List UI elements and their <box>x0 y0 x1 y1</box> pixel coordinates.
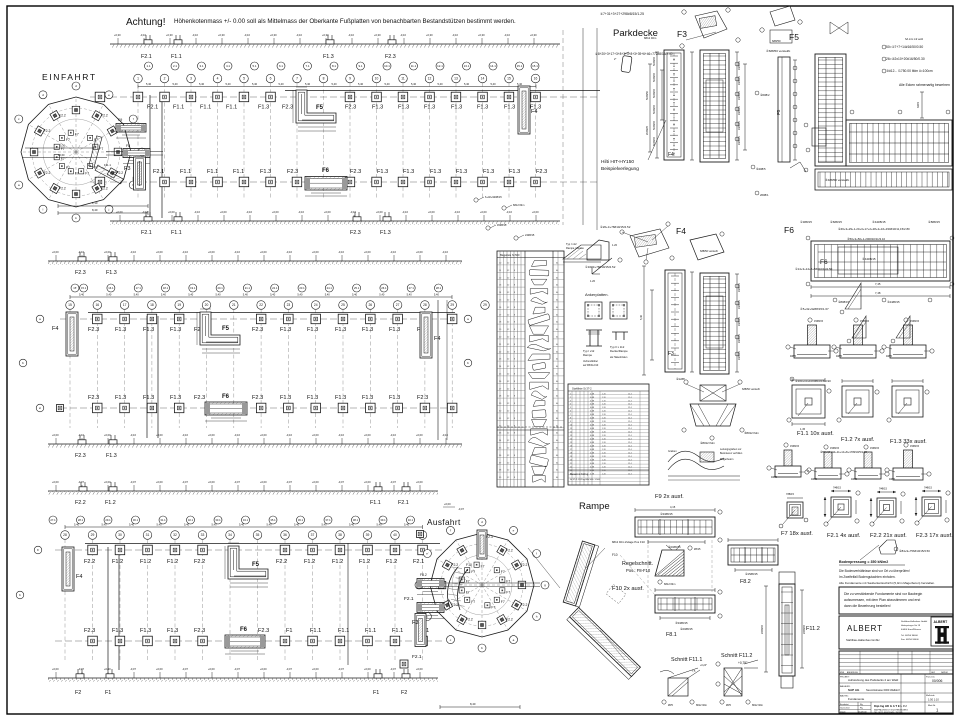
svg-text:+0,00: +0,00 <box>532 210 539 214</box>
svg-text:20#8/25: 20#8/25 <box>646 125 649 135</box>
svg-text:15#8/15: 15#8/15 <box>910 445 920 448</box>
svg-text:③33#8/15: ③33#8/15 <box>675 621 688 625</box>
svg-text:Biegeliste St 500: Biegeliste St 500 <box>500 253 520 257</box>
svg-text:2: 2 <box>570 397 571 399</box>
svg-text:F6: F6 <box>322 168 330 174</box>
svg-text:F11.1: F11.1 <box>104 163 111 167</box>
svg-text:Maßstab: Maßstab <box>926 694 935 697</box>
svg-text:5,40: 5,40 <box>74 523 80 527</box>
svg-text:F2.3: F2.3 <box>345 105 356 111</box>
svg-text:+0,00: +0,00 <box>104 667 111 671</box>
svg-text:①16+3+78#10/15/4.52: ①16+3+78#10/15/4.52 <box>585 265 616 269</box>
svg-text:5,40: 5,40 <box>199 82 205 86</box>
svg-text:Gezeichnet: Gezeichnet <box>840 707 850 710</box>
svg-text:6+32+92#8/15: 6+32+92#8/15 <box>485 195 502 199</box>
svg-text:35: 35 <box>256 533 260 537</box>
svg-text:7#8/15: 7#8/15 <box>924 486 932 490</box>
svg-text:F2.2: F2.2 <box>194 559 205 565</box>
svg-text:7,48: 7,48 <box>875 291 881 295</box>
svg-text:1.20: 1.20 <box>602 449 606 451</box>
svg-text:12.4: 12.4 <box>628 425 632 427</box>
svg-text:5,40: 5,40 <box>517 82 523 86</box>
svg-text:F1.2 7x ausf.: F1.2 7x ausf. <box>841 437 875 443</box>
svg-text:+0,00: +0,00 <box>364 480 371 484</box>
svg-text:6: 6 <box>270 77 272 81</box>
svg-text:F5: F5 <box>222 326 230 332</box>
svg-text:①14+3+14+5+56#10/11/2.50: ①14+3+14+5+56#10/11/2.50 <box>795 267 833 271</box>
svg-text:+0,00: +0,00 <box>364 250 371 254</box>
svg-text:F2.3: F2.3 <box>75 270 86 276</box>
svg-text:1:50 1:10: 1:50 1:10 <box>928 698 939 702</box>
svg-text:-0,16: -0,16 <box>506 210 512 214</box>
svg-text:St 37-2: 812 kg BSt 500: 1.50: St 37-2: 812 kg BSt 500: 1.500 <box>570 478 601 481</box>
svg-text:35.1: 35.1 <box>270 518 276 522</box>
svg-text:Gesamt 2.312 kg: Gesamt 2.312 kg <box>570 473 589 476</box>
svg-text:1.20: 1.20 <box>602 439 606 441</box>
svg-text:F1.2: F1.2 <box>359 559 370 565</box>
svg-text:16.1: 16.1 <box>108 286 114 290</box>
svg-text:-0,07: -0,07 <box>338 667 344 671</box>
svg-text:1.20: 1.20 <box>602 411 606 413</box>
svg-text:7#8/15: 7#8/15 <box>786 492 794 496</box>
svg-text:+0,00: +0,00 <box>260 250 267 254</box>
svg-text:14: 14 <box>570 439 572 441</box>
svg-text:F1.1: F1.1 <box>200 105 211 111</box>
svg-text:5: 5 <box>570 407 571 409</box>
svg-text:-0,16: -0,16 <box>194 210 200 214</box>
svg-text:6.1: 6.1 <box>279 64 283 68</box>
svg-text:50#8/15: 50#8/15 <box>653 56 656 66</box>
svg-text:③44#8/15: ③44#8/15 <box>887 300 900 304</box>
svg-text:26=②2x10+20#16/50/0.30: 26=②2x10+20#16/50/0.30 <box>886 57 925 61</box>
svg-text:4#8/5: 4#8/5 <box>771 476 778 479</box>
svg-text:F2.3: F2.3 <box>417 395 428 401</box>
svg-text:F1.3: F1.3 <box>115 327 126 333</box>
svg-text:15#8/15: 15#8/15 <box>910 320 920 323</box>
svg-text:50=①7+7+14#16/50/0.50: 50=①7+7+14#16/50/0.50 <box>886 45 923 49</box>
svg-text:F3: F3 <box>677 29 687 39</box>
svg-text:5,40: 5,40 <box>184 523 190 527</box>
svg-text:F7: F7 <box>85 171 89 175</box>
svg-text:-0,07: -0,07 <box>78 667 84 671</box>
svg-text:F1: F1 <box>105 690 111 696</box>
svg-text:F2.3: F2.3 <box>282 105 293 111</box>
svg-text:12.4: 12.4 <box>628 456 632 458</box>
svg-text:1.20: 1.20 <box>602 442 606 444</box>
svg-text:②8#12 lfdm: ②8#12 lfdm <box>700 441 715 445</box>
svg-text:9: 9 <box>349 77 351 81</box>
svg-text:auf FB/FL2/10: auf FB/FL2/10 <box>583 364 599 367</box>
svg-text:5,40: 5,40 <box>325 293 331 297</box>
svg-text:+0,00: +0,00 <box>416 433 423 437</box>
svg-text:+0,79°: +0,79° <box>738 661 748 665</box>
svg-text:F10: F10 <box>612 553 618 557</box>
svg-text:F5: F5 <box>789 32 799 42</box>
svg-text:10: 10 <box>375 77 379 81</box>
svg-text:18.1: 18.1 <box>163 286 169 290</box>
svg-text:5,40: 5,40 <box>216 293 222 297</box>
svg-text:+0,00: +0,00 <box>104 433 111 437</box>
svg-text:20.1: 20.1 <box>217 286 223 290</box>
svg-text:23: 23 <box>570 470 572 472</box>
svg-text:20: 20 <box>205 303 209 307</box>
svg-text:5,40: 5,40 <box>212 523 218 527</box>
svg-text:25: 25 <box>341 303 345 307</box>
svg-text:5,40: 5,40 <box>297 293 303 297</box>
svg-text:+0,00: +0,00 <box>364 433 371 437</box>
svg-text:Pos.: F8-F10: Pos.: F8-F10 <box>626 568 651 573</box>
svg-text:2.1: 2.1 <box>173 64 177 68</box>
svg-text:37: 37 <box>311 533 315 537</box>
svg-text:F7: F7 <box>471 600 475 604</box>
svg-text:+0,00: +0,00 <box>52 480 59 484</box>
svg-text:50#8/15: 50#8/15 <box>653 104 656 114</box>
svg-text:Fundamente: Fundamente <box>848 697 865 701</box>
svg-text:-0,16: -0,16 <box>298 210 304 214</box>
svg-text:4#8/5: 4#8/5 <box>836 355 843 358</box>
svg-text:als Hakenböden: als Hakenböden <box>610 356 628 359</box>
svg-text:F2.3: F2.3 <box>258 628 269 634</box>
svg-text:F2.2: F2.2 <box>113 170 119 174</box>
svg-text:①7+31+3+27+298#8/15/1.25: ①7+31+3+27+298#8/15/1.25 <box>600 12 644 16</box>
svg-text:-0,16: -0,16 <box>182 433 188 437</box>
svg-text:5,40: 5,40 <box>134 293 140 297</box>
svg-text:-0,16: -0,16 <box>78 433 84 437</box>
svg-text:32.1: 32.1 <box>188 518 194 522</box>
svg-text:Schnitt F11.1: Schnitt F11.1 <box>671 657 702 663</box>
svg-text:1.20: 1.20 <box>590 279 596 283</box>
svg-text:③#12... /1750.00 lfdm ü=100cm: ③#12... /1750.00 lfdm ü=100cm <box>886 69 933 73</box>
svg-text:8.1: 8.1 <box>332 64 336 68</box>
svg-text:1.20: 1.20 <box>602 453 606 455</box>
svg-text:38: 38 <box>338 533 342 537</box>
svg-text:20#8/15: 20#8/15 <box>738 283 741 292</box>
svg-text:+0,30: +0,30 <box>270 33 277 37</box>
svg-text:5,40: 5,40 <box>377 523 383 527</box>
svg-text:F11.2: F11.2 <box>806 626 820 632</box>
svg-text:5,40: 5,40 <box>352 293 358 297</box>
svg-text:-0,16: -0,16 <box>390 433 396 437</box>
svg-text:+0,00: +0,00 <box>104 480 111 484</box>
svg-text:+0,00: +0,00 <box>156 250 163 254</box>
svg-text:+0,00: +0,00 <box>312 250 319 254</box>
svg-text:+0,00: +0,00 <box>480 210 487 214</box>
svg-text:⑤8#12 lfdm: ⑤8#12 lfdm <box>744 431 759 435</box>
svg-text:②15#8/15: ②15#8/15 <box>745 572 758 576</box>
svg-text:44400 Ernst/Rhause: 44400 Ernst/Rhause <box>901 628 922 631</box>
svg-text:16: 16 <box>570 446 572 448</box>
svg-text:F2.3: F2.3 <box>88 327 99 333</box>
svg-text:15#8/15: 15#8/15 <box>814 320 824 323</box>
svg-text:5,40: 5,40 <box>438 82 444 86</box>
svg-text:12.4: 12.4 <box>628 404 632 406</box>
svg-text:+0,00: +0,00 <box>260 433 267 437</box>
svg-text:F1.1: F1.1 <box>180 169 191 175</box>
svg-text:F1.3: F1.3 <box>430 169 441 175</box>
svg-text:F2.1: F2.1 <box>141 54 152 60</box>
svg-text:②100+10+1000#10/15/3.90: ②100+10+1000#10/15/3.90 <box>795 379 831 383</box>
svg-text:24: 24 <box>314 303 318 307</box>
svg-text:F2.2: F2.2 <box>451 563 458 567</box>
svg-text:④5+32+92#8/15/1.67: ④5+32+92#8/15/1.67 <box>800 307 829 311</box>
svg-text:②12#8: ②12#8 <box>676 377 685 381</box>
svg-text:-0,10: -0,10 <box>400 33 406 37</box>
svg-text:F1.3: F1.3 <box>380 230 391 236</box>
svg-text:F1.3: F1.3 <box>307 395 318 401</box>
svg-text:+0,00: +0,00 <box>312 667 319 671</box>
svg-text:F2.2: F2.2 <box>466 618 473 622</box>
svg-text:-0,16: -0,16 <box>130 433 136 437</box>
svg-text:12.4: 12.4 <box>628 411 632 413</box>
svg-text:22: 22 <box>259 303 263 307</box>
svg-text:F2.1: F2.1 <box>404 596 414 602</box>
svg-text:-0,07: -0,07 <box>130 667 136 671</box>
svg-text:11: 11 <box>570 428 572 430</box>
svg-text:27.1: 27.1 <box>409 286 415 290</box>
svg-text:Schnitt F11.2: Schnitt F11.2 <box>721 653 752 659</box>
svg-text:39: 39 <box>366 533 370 537</box>
svg-text:F1.3: F1.3 <box>307 327 318 333</box>
svg-text:F1.2: F1.2 <box>140 559 151 565</box>
svg-text:+0,00: +0,00 <box>312 480 319 484</box>
svg-text:5,40: 5,40 <box>491 82 497 86</box>
svg-text:2°: 2° <box>614 58 616 61</box>
svg-text:F1.2: F1.2 <box>386 559 397 565</box>
svg-text:15#8/15: 15#8/15 <box>790 445 800 448</box>
svg-text:22.1: 22.1 <box>272 286 278 290</box>
svg-text:+0,00: +0,00 <box>364 667 371 671</box>
svg-text:8,40: 8,40 <box>92 208 98 212</box>
svg-text:20#8/15: 20#8/15 <box>738 351 741 360</box>
svg-text:+0,00: +0,00 <box>428 210 435 214</box>
svg-text:-0,07: -0,07 <box>458 507 464 511</box>
svg-text:F7: F7 <box>75 133 79 137</box>
svg-text:F9: F9 <box>118 118 122 122</box>
svg-text:dann die Bewehrung bestellen!: dann die Bewehrung bestellen! <box>844 604 891 608</box>
svg-text:+0,30: +0,30 <box>374 33 381 37</box>
svg-text:5,40: 5,40 <box>102 523 108 527</box>
svg-text:F7: F7 <box>61 157 65 161</box>
svg-text:+0,00: +0,00 <box>208 480 215 484</box>
svg-text:13: 13 <box>570 435 572 437</box>
svg-text:F2.2: F2.2 <box>84 559 95 565</box>
svg-text:12.4: 12.4 <box>628 397 632 399</box>
svg-text:F2.3: F2.3 <box>350 169 361 175</box>
svg-text:5,40: 5,40 <box>385 82 391 86</box>
svg-text:Hilti HIT-HY150: Hilti HIT-HY150 <box>601 159 634 165</box>
svg-text:-0,16: -0,16 <box>142 210 148 214</box>
svg-text:F2.3: F2.3 <box>194 628 205 634</box>
svg-text:5,40: 5,40 <box>188 293 194 297</box>
svg-text:F1.3: F1.3 <box>106 453 117 459</box>
svg-text:+0,00: +0,00 <box>220 210 227 214</box>
svg-text:F1.3: F1.3 <box>389 395 400 401</box>
svg-text:8#12 lfdm: 8#12 lfdm <box>664 582 675 586</box>
svg-text:F1.1: F1.1 <box>310 628 321 634</box>
svg-text:-0,07: -0,07 <box>182 667 188 671</box>
svg-text:1.20: 1.20 <box>602 456 606 458</box>
svg-text:5,40: 5,40 <box>332 82 338 86</box>
svg-text:12.4: 12.4 <box>628 393 632 395</box>
svg-text:5,30: 5,30 <box>60 144 66 148</box>
svg-text:F2.3: F2.3 <box>88 395 99 401</box>
svg-text:Bodenpressung = 350 kN/m2: Bodenpressung = 350 kN/m2 <box>839 560 888 564</box>
svg-text:12.4: 12.4 <box>628 400 632 402</box>
svg-text:15#8/15: 15#8/15 <box>860 320 870 323</box>
svg-text:+0,00: +0,00 <box>208 250 215 254</box>
svg-text:aufzumessen, mit dem Plan abzu: aufzumessen, mit dem Plan abzustimmen un… <box>844 598 920 602</box>
svg-text:F1.3: F1.3 <box>258 105 269 111</box>
svg-text:12.4: 12.4 <box>628 453 632 455</box>
svg-text:SA mm mit verkl: SA mm mit verkl <box>905 38 924 41</box>
svg-text:12.4: 12.4 <box>628 407 632 409</box>
svg-text:F2.2: F2.2 <box>521 603 528 607</box>
svg-text:5,40: 5,40 <box>270 293 276 297</box>
svg-text:15#8/15: 15#8/15 <box>870 447 880 450</box>
svg-text:12: 12 <box>428 77 432 81</box>
svg-text:15: 15 <box>68 303 72 307</box>
svg-text:F2.2: F2.2 <box>506 618 513 622</box>
svg-text:Alle Ecken rahmenartig bewehre: Alle Ecken rahmenartig bewehren <box>899 83 950 87</box>
svg-text:F2: F2 <box>75 690 81 696</box>
svg-text:+0,00: +0,00 <box>324 210 331 214</box>
svg-text:SAP AG: SAP AG <box>848 688 860 692</box>
svg-text:F1.3: F1.3 <box>335 327 346 333</box>
svg-text:6: 6 <box>570 411 571 413</box>
svg-text:F7: F7 <box>501 570 505 574</box>
svg-text:24.1: 24.1 <box>327 286 333 290</box>
svg-text:F1.3: F1.3 <box>140 628 151 634</box>
svg-text:12.1: 12.1 <box>437 64 443 68</box>
svg-text:③50+3+50+1-200#10/11/3.10: ③50+3+50+1-200#10/11/3.10 <box>847 237 886 241</box>
svg-text:Stahlbau-Hallenbau GmbH: Stahlbau-Hallenbau GmbH <box>846 638 879 642</box>
svg-text:Decke/Rampe: Decke/Rampe <box>610 349 628 353</box>
svg-text:F1.2: F1.2 <box>112 559 123 565</box>
svg-text:+0,00: +0,00 <box>260 667 267 671</box>
svg-text:19: 19 <box>570 456 572 458</box>
svg-text:F2.3: F2.3 <box>350 230 361 236</box>
svg-text:F2.3: F2.3 <box>287 169 298 175</box>
svg-text:F7: F7 <box>66 166 70 170</box>
svg-text:F3: F3 <box>668 351 674 357</box>
svg-text:Typ I v12: Typ I v12 <box>566 242 577 246</box>
svg-text:-0,07: -0,07 <box>286 667 292 671</box>
svg-text:4,15: 4,15 <box>670 505 676 509</box>
svg-text:F2.3: F2.3 <box>486 535 493 539</box>
svg-text:28: 28 <box>63 533 67 537</box>
svg-text:15#8/15: 15#8/15 <box>830 447 840 450</box>
svg-text:1.20: 1.20 <box>612 243 618 247</box>
svg-text:-0,16: -0,16 <box>234 250 240 254</box>
svg-text:F8.2: F8.2 <box>740 579 751 585</box>
svg-text:33.1: 33.1 <box>215 518 221 522</box>
svg-text:F1.3: F1.3 <box>377 169 388 175</box>
svg-text:②8#8/15: ②8#8/15 <box>838 300 850 304</box>
svg-text:F4: F4 <box>76 574 83 580</box>
svg-text:5,40: 5,40 <box>79 293 85 297</box>
svg-text:F1.3: F1.3 <box>170 395 181 401</box>
svg-text:7: 7 <box>296 77 298 81</box>
svg-text:+0,24°: +0,24° <box>700 664 707 667</box>
svg-text:F8: F8 <box>126 144 130 148</box>
svg-text:F2.2: F2.2 <box>101 186 108 190</box>
svg-text:50#8/15: 50#8/15 <box>653 136 656 146</box>
svg-text:15: 15 <box>507 77 511 81</box>
svg-text:-0,07: -0,07 <box>390 480 396 484</box>
svg-text:F10: F10 <box>466 563 472 567</box>
svg-text:-0,16: -0,16 <box>246 210 252 214</box>
svg-text:12.4: 12.4 <box>628 439 632 441</box>
svg-text:5,40: 5,40 <box>252 82 258 86</box>
svg-text:29: 29 <box>483 303 487 307</box>
svg-text:7,45: 7,45 <box>875 282 881 286</box>
svg-text:F1.3: F1.3 <box>372 105 383 111</box>
svg-text:12: 12 <box>570 432 572 434</box>
svg-text:6#8/50 versteift: 6#8/50 versteift <box>700 249 718 253</box>
svg-text:12.4: 12.4 <box>628 470 632 472</box>
svg-text:5,40: 5,40 <box>129 523 135 527</box>
svg-text:5,40: 5,40 <box>294 523 300 527</box>
svg-text:5,40: 5,40 <box>434 293 440 297</box>
svg-text:ALBERT: ALBERT <box>934 620 949 624</box>
svg-text:-0,16: -0,16 <box>286 433 292 437</box>
svg-text:F1.1: F1.1 <box>171 230 182 236</box>
svg-text:F1.3 33x ausf.: F1.3 33x ausf. <box>890 439 927 445</box>
svg-text:16: 16 <box>95 303 99 307</box>
svg-text:1.20: 1.20 <box>602 404 606 406</box>
svg-text:4#8/5: 4#8/5 <box>790 355 797 358</box>
svg-text:Magerbeton: Magerbeton <box>720 458 734 461</box>
svg-text:1.20: 1.20 <box>602 463 606 465</box>
svg-text:F1.3: F1.3 <box>106 270 117 276</box>
svg-text:18: 18 <box>570 453 572 455</box>
svg-text:5,40: 5,40 <box>146 82 152 86</box>
svg-text:5,40: 5,40 <box>305 82 311 86</box>
svg-text:1: 1 <box>570 393 571 395</box>
svg-text:-0,16: -0,16 <box>182 250 188 254</box>
svg-text:8#12 lfdm: 8#12 lfdm <box>752 704 763 707</box>
svg-text:37.1: 37.1 <box>325 518 331 522</box>
svg-text:Im Zweifelfall Bodengutachten: Im Zweifelfall Bodengutachten einholen. <box>839 575 896 579</box>
svg-text:50#8/50: 50#8/50 <box>646 90 649 100</box>
svg-text:F1.3: F1.3 <box>143 395 154 401</box>
svg-text:+0,30: +0,30 <box>114 33 121 37</box>
svg-text:1.20: 1.20 <box>602 421 606 423</box>
svg-text:8#12 lfdm: 8#12 lfdm <box>513 203 524 207</box>
svg-text:F2.3: F2.3 <box>252 327 263 333</box>
svg-text:F7: F7 <box>481 565 485 569</box>
svg-text:-0,10: -0,10 <box>192 33 198 37</box>
svg-text:F2.2: F2.2 <box>506 548 513 552</box>
svg-text:12.4: 12.4 <box>628 466 632 468</box>
svg-text:39.1: 39.1 <box>380 518 386 522</box>
svg-text:②26+3+78#10/15/4.52: ②26+3+78#10/15/4.52 <box>600 225 631 229</box>
svg-text:50#8/15: 50#8/15 <box>653 72 656 82</box>
svg-text:②20#8/15: ②20#8/15 <box>680 627 693 631</box>
svg-text:Blatt Nr: Blatt Nr <box>928 704 936 707</box>
svg-text:-0,07: -0,07 <box>182 480 188 484</box>
svg-text:F1.3: F1.3 <box>362 327 373 333</box>
svg-text:F4: F4 <box>676 226 686 236</box>
svg-text:-0,16: -0,16 <box>402 210 408 214</box>
svg-text:Leitungsgraben vor: Leitungsgraben vor <box>720 448 742 451</box>
svg-text:-0,16: -0,16 <box>234 433 240 437</box>
svg-text:F1.3: F1.3 <box>260 169 271 175</box>
svg-text:28.1: 28.1 <box>436 286 442 290</box>
svg-text:F1.1: F1.1 <box>392 628 403 634</box>
svg-text:③44#8/15: ③44#8/15 <box>872 220 886 224</box>
svg-text:F3: F3 <box>412 620 419 626</box>
